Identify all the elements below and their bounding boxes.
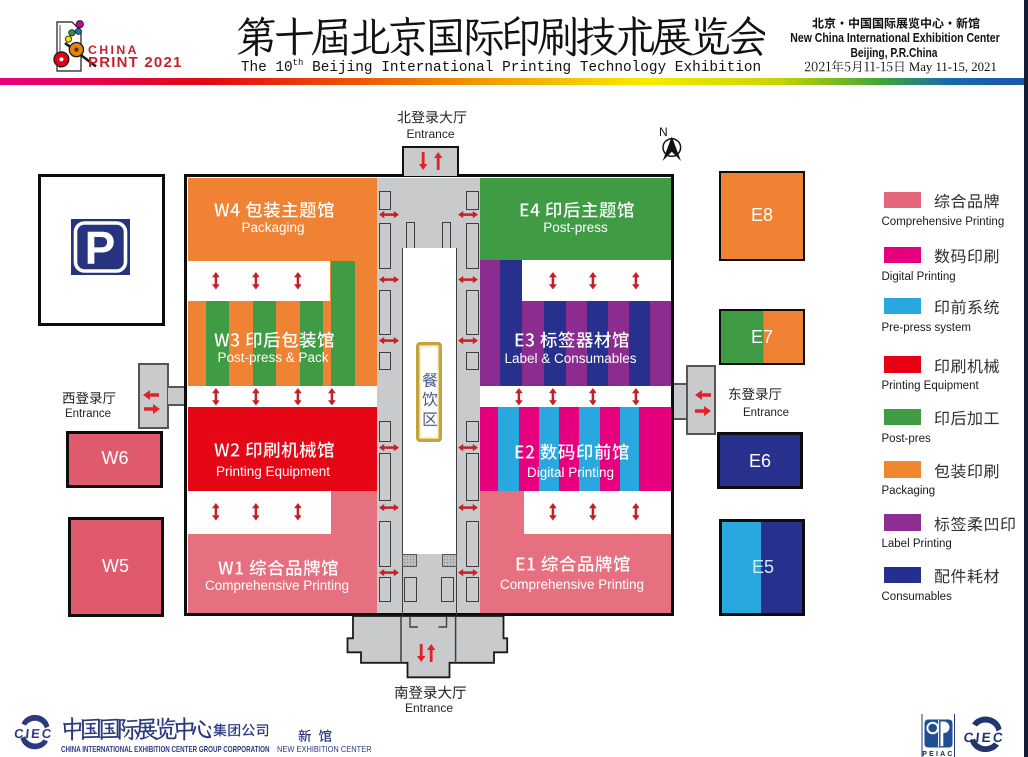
svg-text:N: N (659, 125, 668, 139)
svg-text:CIEC: CIEC (14, 726, 53, 741)
svg-text:P: P (85, 222, 116, 274)
svg-text:CIEC: CIEC (963, 730, 1004, 745)
svg-text:PEIAC: PEIAC (922, 751, 954, 757)
